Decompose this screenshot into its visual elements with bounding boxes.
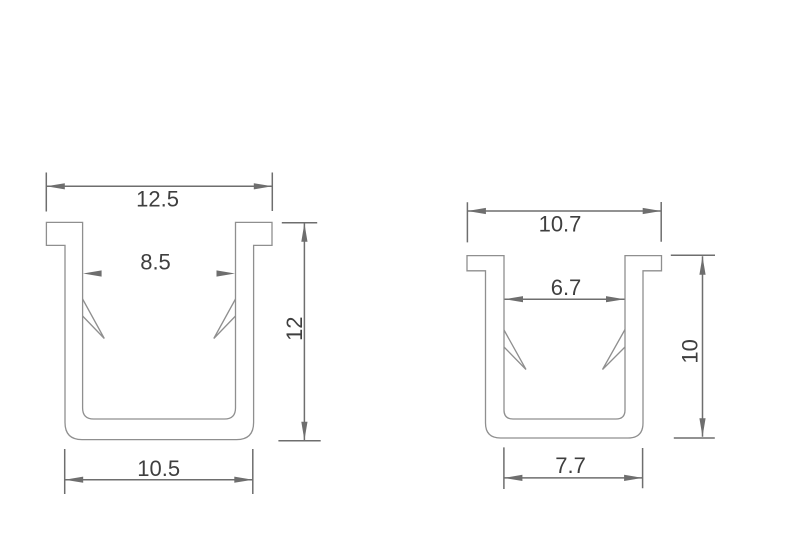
- svg-text:7.7: 7.7: [555, 453, 586, 478]
- svg-text:12.5: 12.5: [136, 186, 179, 211]
- svg-text:6.7: 6.7: [551, 275, 582, 300]
- svg-text:12: 12: [282, 316, 307, 340]
- svg-text:8.5: 8.5: [140, 250, 171, 275]
- svg-text:10.5: 10.5: [137, 456, 180, 481]
- svg-text:10.7: 10.7: [539, 211, 582, 236]
- svg-text:10: 10: [678, 339, 703, 363]
